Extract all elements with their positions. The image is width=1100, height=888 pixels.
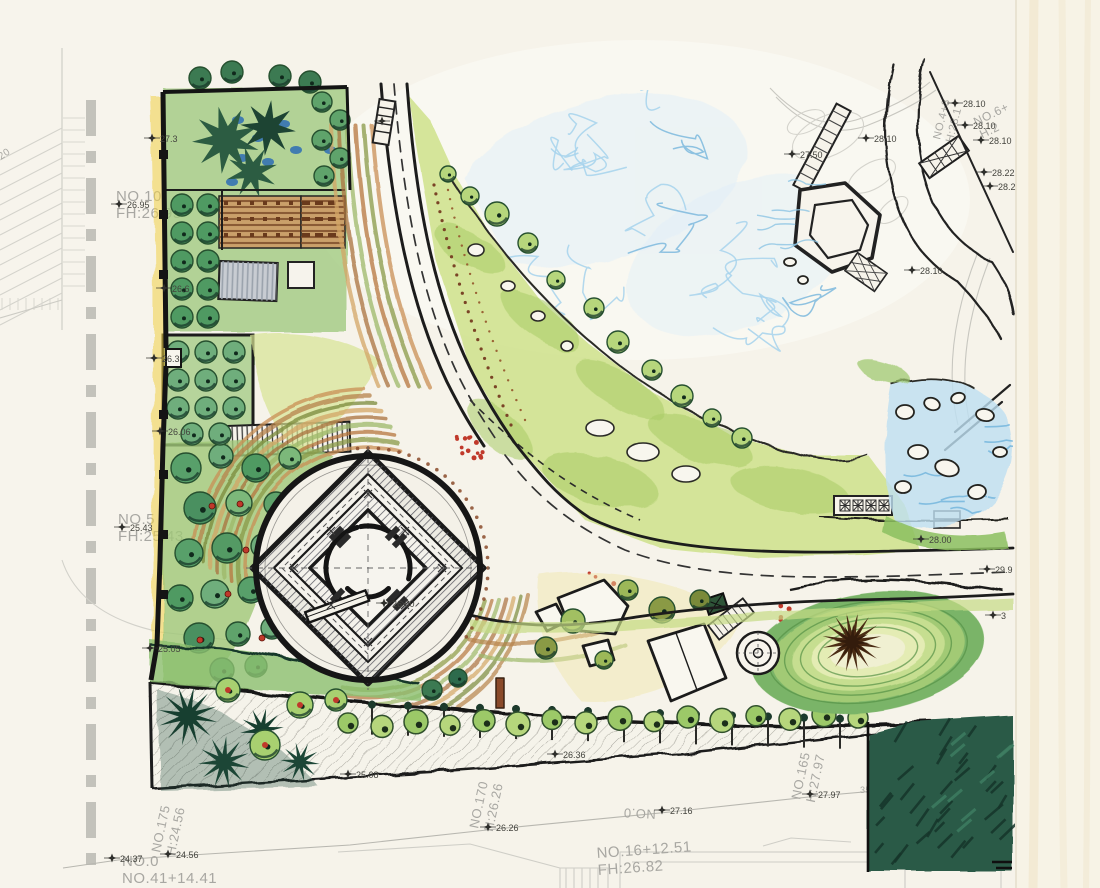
station-label: NO.0 bbox=[623, 805, 656, 822]
svg-text:27.97: 27.97 bbox=[818, 790, 841, 800]
svg-text:26.3: 26.3 bbox=[162, 354, 180, 364]
svg-text:3: 3 bbox=[1001, 611, 1006, 621]
svg-text:26.00: 26.00 bbox=[392, 599, 415, 609]
svg-text:24.56: 24.56 bbox=[176, 850, 199, 860]
svg-text:28.10: 28.10 bbox=[963, 99, 986, 109]
svg-text:28.10: 28.10 bbox=[989, 136, 1012, 146]
svg-text:28.10: 28.10 bbox=[874, 134, 897, 144]
svg-text:27.16: 27.16 bbox=[670, 806, 693, 816]
svg-text:24.37: 24.37 bbox=[120, 854, 143, 864]
svg-text:25.05: 25.05 bbox=[158, 644, 181, 654]
svg-text:27.3: 27.3 bbox=[160, 134, 178, 144]
svg-text:26.95: 26.95 bbox=[127, 200, 150, 210]
plan-drawing: NO.10FH:26.95NO.5FH:25.43NO.175H:24.56NO… bbox=[0, 0, 1100, 888]
svg-text:25.08: 25.08 bbox=[356, 770, 379, 780]
svg-text:NO.41+14.41: NO.41+14.41 bbox=[122, 870, 217, 887]
footbridge bbox=[496, 678, 504, 708]
svg-text:26.36: 26.36 bbox=[563, 750, 586, 760]
scanned-master-plan: NO.10FH:26.95NO.5FH:25.43NO.175H:24.56NO… bbox=[0, 0, 1100, 888]
svg-text:28.10: 28.10 bbox=[920, 266, 943, 276]
svg-text:29.9: 29.9 bbox=[995, 565, 1013, 575]
svg-text:26.6: 26.6 bbox=[172, 284, 190, 294]
svg-text:26.06: 26.06 bbox=[168, 427, 191, 437]
svg-text:28.2: 28.2 bbox=[998, 182, 1016, 192]
svg-text:26.26: 26.26 bbox=[496, 823, 519, 833]
svg-text:28.22: 28.22 bbox=[992, 168, 1015, 178]
svg-text:28.00: 28.00 bbox=[929, 535, 952, 545]
svg-text:25.43: 25.43 bbox=[130, 523, 153, 533]
svg-text:28.10: 28.10 bbox=[973, 121, 996, 131]
paper-margin bbox=[1016, 0, 1100, 888]
southeast-forest-corner bbox=[868, 716, 1017, 872]
svg-text:NO.0: NO.0 bbox=[623, 805, 656, 822]
svg-text:27.50: 27.50 bbox=[800, 150, 823, 160]
